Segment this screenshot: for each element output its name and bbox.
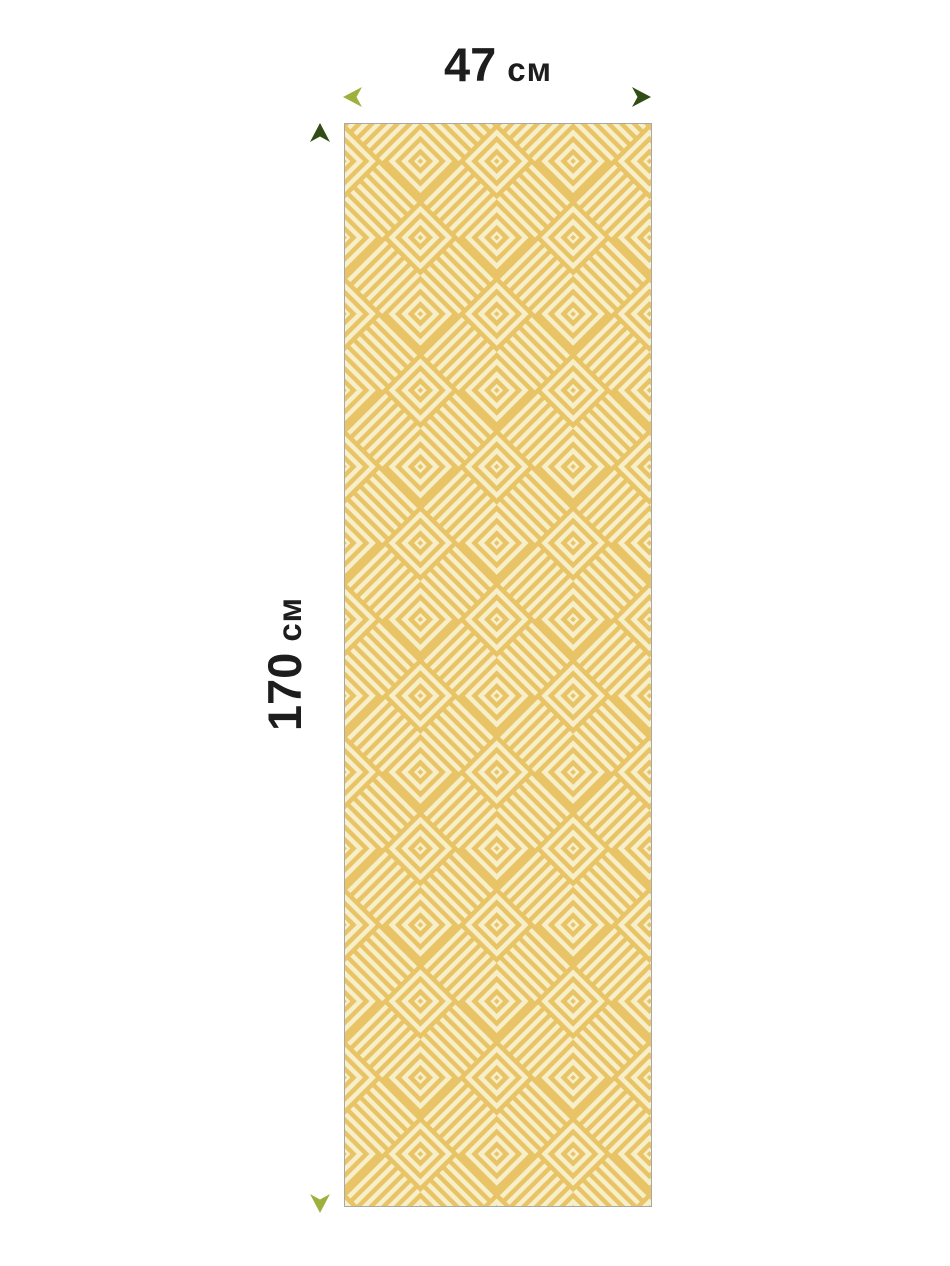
bottom-arrowhead-icon bbox=[310, 1194, 330, 1213]
rug bbox=[344, 123, 652, 1207]
right-arrowhead-icon bbox=[632, 87, 651, 107]
product-dimension-image: 47 см 170 см bbox=[0, 0, 950, 1266]
height-dimension-label: 170 см bbox=[261, 494, 321, 834]
left-arrowhead-icon bbox=[343, 87, 362, 107]
width-value: 47 bbox=[444, 41, 496, 88]
width-dimension-label: 47 см bbox=[344, 41, 652, 88]
rug-image bbox=[344, 123, 652, 1207]
height-unit: см bbox=[273, 597, 306, 642]
top-arrowhead-icon bbox=[310, 123, 330, 142]
width-arrow bbox=[343, 87, 651, 107]
width-unit: см bbox=[507, 53, 552, 86]
height-value: 170 bbox=[261, 653, 308, 731]
